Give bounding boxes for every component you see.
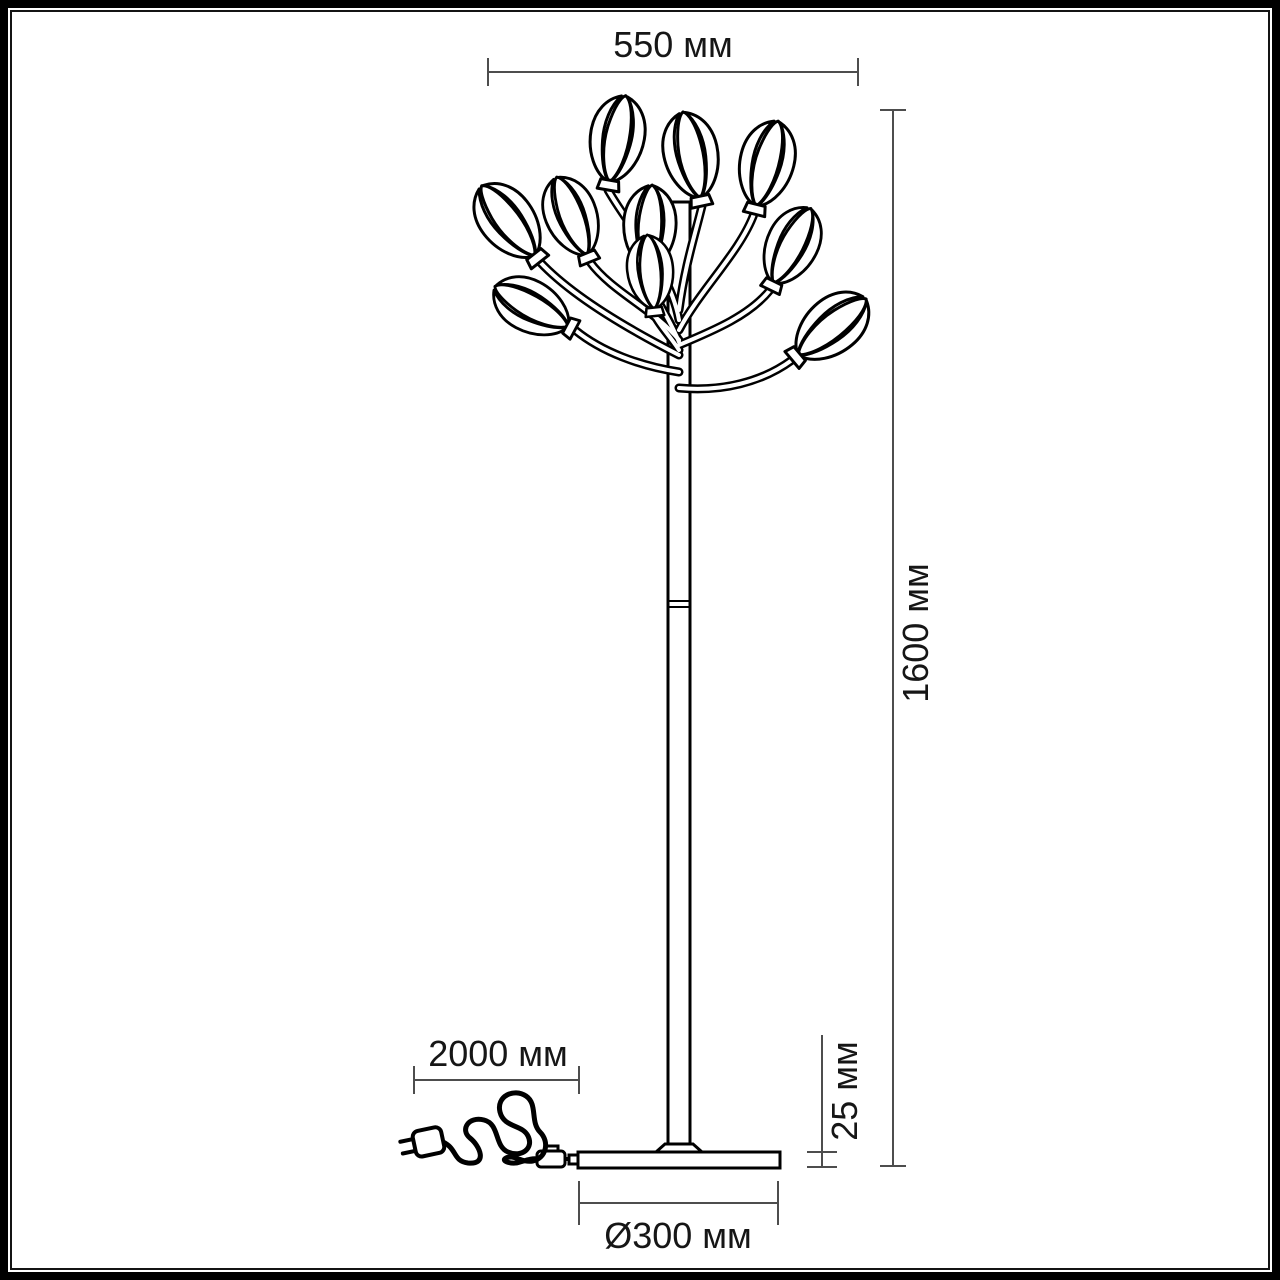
dim-cord-length-label: 2000 мм [428,1033,568,1075]
lamp-base [569,1152,780,1168]
base-cord-inlet [569,1155,578,1164]
power-plug-icon [399,1126,445,1160]
dim-base-diameter-label: Ø300 мм [604,1215,752,1257]
dim-top-width-label: 550 мм [613,24,733,66]
lamp-dimension-drawing [0,0,1280,1280]
coiled-cord-icon [441,1093,546,1163]
dim-base-thickness-label: 25 мм [824,1041,866,1141]
dim-height-label: 1600 мм [895,563,937,703]
